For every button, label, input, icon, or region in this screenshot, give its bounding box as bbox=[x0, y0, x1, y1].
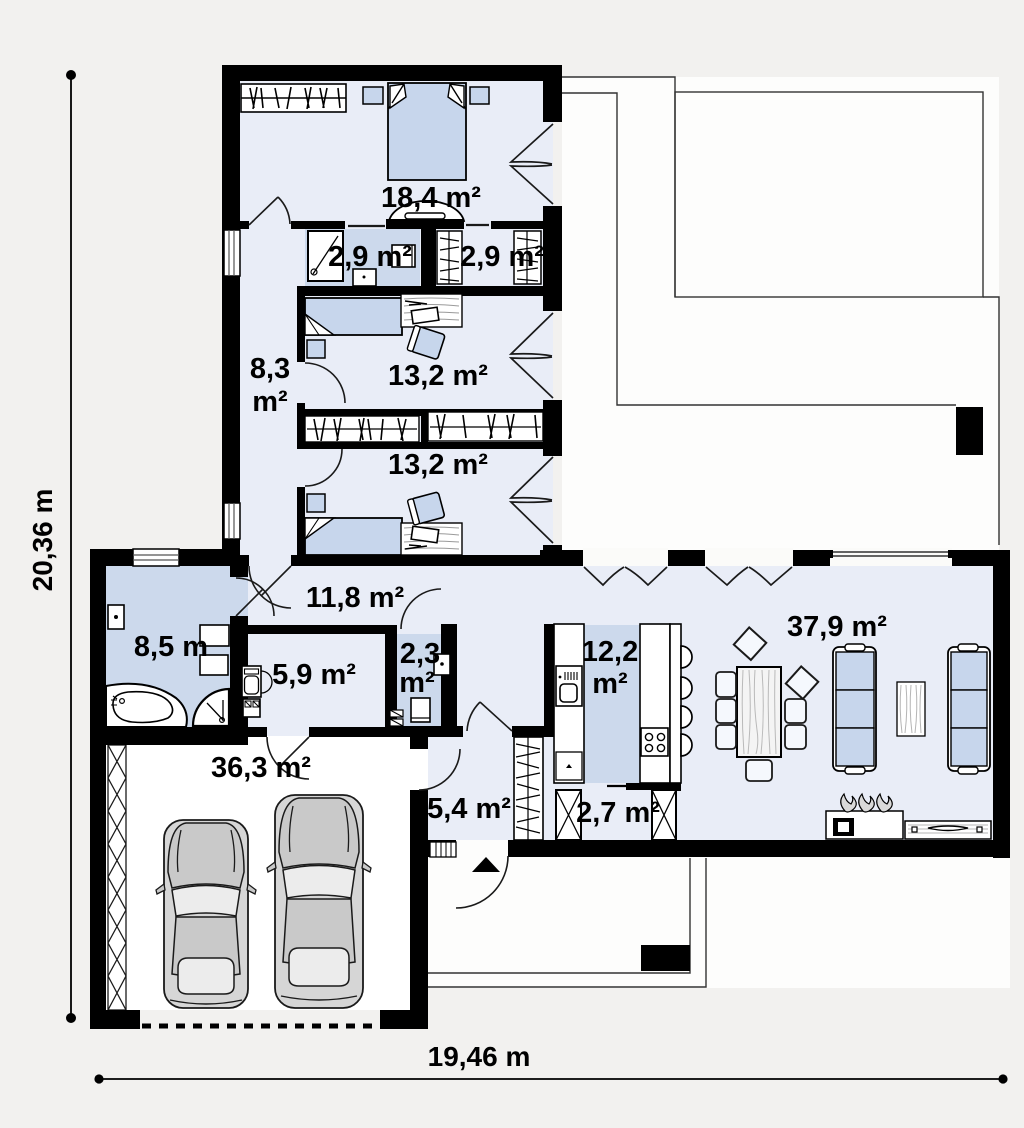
svg-text:2,3: 2,3 bbox=[400, 638, 440, 670]
svg-text:2,7 m²: 2,7 m² bbox=[576, 797, 660, 829]
svg-text:12,2: 12,2 bbox=[582, 636, 638, 668]
svg-text:37,9 m²: 37,9 m² bbox=[787, 611, 887, 643]
svg-text:11,8 m²: 11,8 m² bbox=[306, 582, 405, 614]
svg-text:13,2 m²: 13,2 m² bbox=[388, 449, 488, 481]
svg-text:2,9 m²: 2,9 m² bbox=[460, 241, 544, 273]
svg-text:5,4 m²: 5,4 m² bbox=[427, 793, 511, 825]
svg-text:8,3: 8,3 bbox=[250, 353, 290, 385]
svg-text:8,5 m: 8,5 m bbox=[134, 631, 208, 663]
svg-text:18,4 m²: 18,4 m² bbox=[381, 182, 481, 214]
svg-text:m²: m² bbox=[399, 667, 435, 699]
svg-text:20,36 m: 20,36 m bbox=[27, 489, 58, 592]
svg-text:m²: m² bbox=[592, 668, 628, 700]
svg-text:36,3 m²: 36,3 m² bbox=[211, 752, 311, 784]
svg-text:m²: m² bbox=[252, 386, 288, 418]
svg-text:13,2 m²: 13,2 m² bbox=[388, 360, 488, 392]
svg-text:19,46 m: 19,46 m bbox=[428, 1041, 531, 1072]
svg-text:2,9 m²: 2,9 m² bbox=[328, 241, 412, 273]
svg-text:5,9 m²: 5,9 m² bbox=[272, 659, 356, 691]
